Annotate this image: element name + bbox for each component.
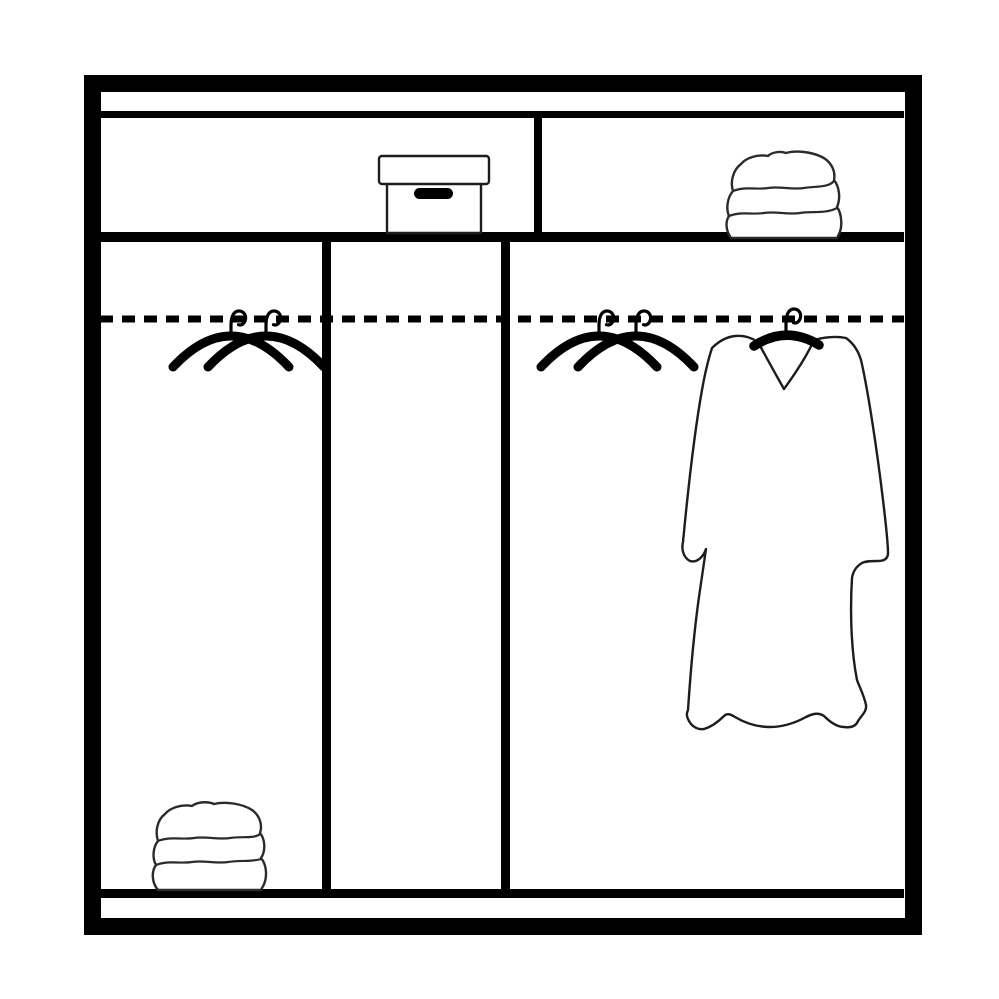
- storage-box-handle-slot: [414, 188, 453, 199]
- folded-linen-stack-bottom: [153, 802, 266, 890]
- folded-linen-stack-top: [727, 152, 842, 238]
- wardrobe-diagram: [0, 0, 999, 999]
- left-compartment-divider: [322, 242, 331, 889]
- right-compartment-divider: [501, 242, 510, 889]
- storage-box-lid: [379, 156, 489, 184]
- hanging-garment: [682, 309, 888, 729]
- robe-outline: [682, 336, 888, 729]
- wardrobe-schematic-svg: [0, 0, 999, 999]
- linen-stack-outline: [153, 802, 266, 890]
- top-shelf-divider: [534, 118, 542, 232]
- top-panel-line: [100, 111, 904, 118]
- linen-stack-outline: [727, 152, 842, 238]
- storage-box: [379, 156, 489, 233]
